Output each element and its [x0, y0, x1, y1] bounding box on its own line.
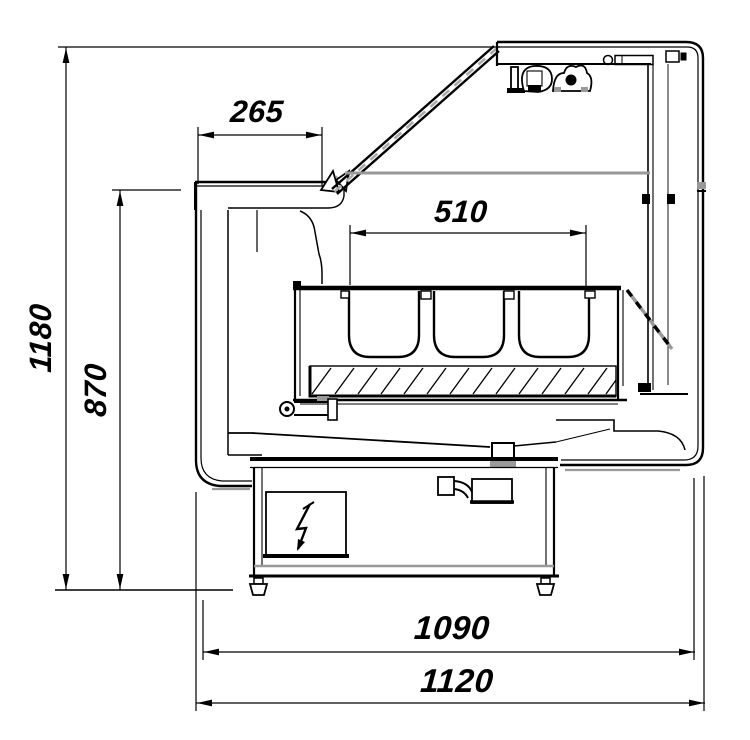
gastronorm-pans	[341, 291, 595, 357]
dim-label-1120: 1120	[419, 662, 495, 700]
technical-drawing-canvas: 265 510 1180 870 1090 1120	[0, 0, 750, 740]
dimension-870	[112, 190, 181, 590]
dim-label-870: 870	[78, 362, 114, 418]
dim-label-510: 510	[433, 194, 489, 230]
drain-trap	[438, 477, 514, 503]
adjustable-foot-right	[537, 578, 554, 595]
insulation-hatch	[310, 366, 616, 396]
adjustable-foot-left	[250, 578, 267, 595]
display-well	[280, 281, 672, 420]
dimension-265	[198, 127, 322, 186]
dim-label-1090: 1090	[413, 609, 491, 647]
counter-worktop	[195, 182, 344, 210]
electrical-box	[263, 492, 349, 556]
front-panel	[196, 182, 322, 489]
rear-glass-divider	[627, 290, 672, 349]
lamp-fixture	[507, 65, 591, 93]
dimension-510	[350, 225, 586, 289]
canopy	[497, 42, 698, 66]
back-panel	[497, 42, 706, 470]
dim-label-1180: 1180	[23, 302, 59, 373]
dim-label-265: 265	[229, 94, 285, 130]
